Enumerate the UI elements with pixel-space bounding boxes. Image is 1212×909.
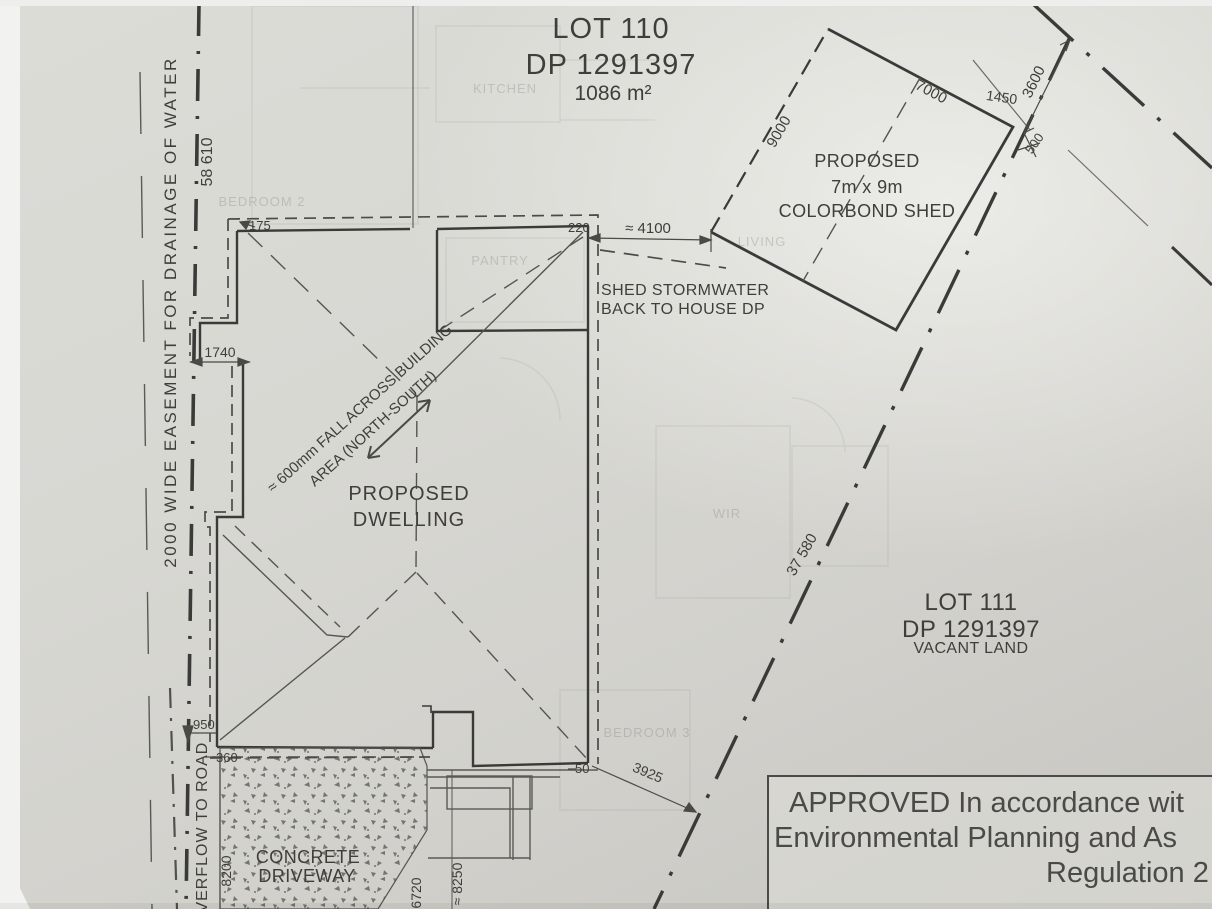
dwelling-label-2: DWELLING	[353, 509, 465, 531]
stamp-line-1: APPROVED In accordance wit	[789, 787, 1184, 819]
dim-950: 950	[193, 717, 215, 732]
dim-7000: 7000	[912, 77, 949, 108]
overflow-note: OVERFLOW TO ROAD	[194, 742, 211, 909]
dim-east-boundary: 37 580	[783, 531, 821, 579]
site-plan-svg: KITCHEN PANTRY LIVING WIR BEDROOM 2 BEDR…	[0, 0, 1212, 909]
stamp-line-2: Environmental Planning and As	[774, 822, 1177, 854]
dim-175: 175	[249, 218, 271, 233]
lot110-dp: DP 1291397	[526, 49, 697, 81]
boundary-northeast	[1032, 3, 1212, 168]
bleed-label-pantry: PANTRY	[471, 253, 529, 268]
bleed-label-bedroom3: BEDROOM 3	[603, 725, 690, 740]
dim-360: 360	[216, 750, 238, 765]
bleed-label-kitchen: KITCHEN	[473, 81, 537, 96]
stamp-line-3: Regulation 2	[1046, 857, 1209, 889]
approval-stamp: APPROVED In accordance wit Environmental…	[768, 776, 1212, 909]
lot111-title: LOT 111	[925, 589, 1018, 616]
lot110-title-block: LOT 110 DP 1291397 1086 m²	[526, 13, 697, 105]
road-line-1	[1068, 150, 1148, 226]
lot111-dp: DP 1291397	[902, 616, 1040, 643]
site-plan-photo: { "lot110": { "title": "LOT 110", "dp": …	[0, 0, 1212, 909]
dim-west-boundary: 58 610	[199, 137, 216, 186]
dimension-lines	[183, 40, 1070, 812]
dim-220: 220	[568, 220, 590, 235]
lot110-area: 1086 m²	[574, 82, 651, 105]
lot111-note: VACANT LAND	[914, 640, 1029, 657]
stormwater-note-1: SHED STORMWATER	[601, 282, 769, 299]
road-line-2	[1172, 247, 1212, 285]
dim-8250: ≈ 8250	[449, 862, 465, 905]
dim-3600: 3600	[1019, 63, 1049, 100]
dim-1740: 1740	[204, 344, 235, 360]
driveway-label-2: DRIVEWAY	[258, 866, 355, 886]
shed-label-3: COLORBOND SHED	[779, 201, 956, 221]
bleed-label-bedroom2: BEDROOM 2	[218, 194, 305, 209]
lot110-title: LOT 110	[552, 13, 669, 45]
dim-4100: ≈ 4100	[625, 220, 671, 237]
dim-1450: 1450	[985, 87, 1018, 107]
easement-note: 2000 WIDE EASEMENT FOR DRAINAGE OF WATER	[161, 56, 180, 568]
easement-line	[140, 72, 152, 909]
bleed-label-living: LIVING	[738, 234, 787, 249]
driveway-label-1: CONCRETE	[256, 847, 360, 867]
dim-500: 500	[1022, 130, 1047, 156]
stormwater-note-2: BACK TO HOUSE DP	[601, 301, 765, 318]
dim-3925: 3925	[630, 759, 665, 786]
dim-8200: 8200	[218, 855, 234, 886]
easement-line-lower	[170, 688, 177, 909]
stormwater-pipe-line	[600, 250, 726, 268]
bleed-through-labels: KITCHEN PANTRY LIVING WIR BEDROOM 2 BEDR…	[218, 81, 786, 740]
shed-label-1: PROPOSED	[814, 151, 919, 171]
dwelling-label-1: PROPOSED	[348, 483, 469, 505]
bleed-label-wir: WIR	[713, 506, 741, 521]
dim-50: 50	[575, 761, 589, 776]
shed-label-2: 7m x 9m	[831, 177, 903, 197]
lot111-title-block: LOT 111 DP 1291397 VACANT LAND	[902, 589, 1040, 657]
